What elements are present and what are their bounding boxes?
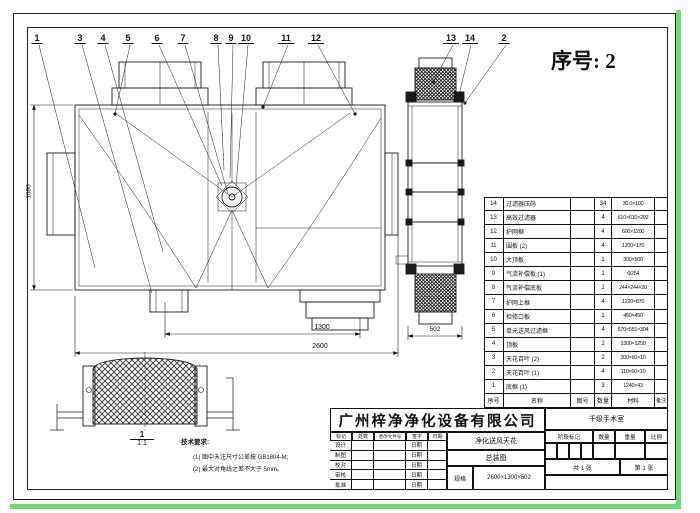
stage-col-weight: 重量 <box>615 430 645 443</box>
dim-depth: 502 <box>430 326 441 333</box>
bom-row: 11 围板 (2) 4 1200×170 <box>484 239 668 253</box>
bom-row: 1 底框 (1) 3 1240×43 <box>484 380 668 394</box>
revision-date-cell <box>428 470 447 480</box>
bom-cell-remark <box>655 239 668 253</box>
bom-header-row: 序号 名称 图号 数量 材料 备注 <box>484 394 668 408</box>
bom-cell-name: 天花百叶 (1) <box>504 366 571 380</box>
bom-cell-size: 450×450 <box>612 310 655 324</box>
bom-cell-size: 300×500 <box>612 253 655 267</box>
bom-row: 4 顶板 2 1300×1250 <box>484 338 668 352</box>
bom-row: 9 气流补偿板 (1) 1 Φ254 <box>484 267 668 281</box>
balloon-callout-8: 8 <box>210 33 221 44</box>
balloon-callout-1: 1 <box>31 33 42 44</box>
bom-cell-qty: 4 <box>595 211 612 225</box>
dim-overall-width: 2600 <box>312 343 328 350</box>
bom-row: 5 单元送风过滤框 4 570×551×304 <box>484 324 668 338</box>
title-block-empty-cell <box>545 475 668 490</box>
revision-date-cell <box>428 480 447 490</box>
scan-edge-right <box>676 10 681 504</box>
technical-requirements: 技术要求: (1) 图中未注尺寸公差按 GB1804-M; (2) 最大对角线之… <box>181 437 351 476</box>
bom-cell-no: 7 <box>484 295 504 309</box>
bom-cell-remark <box>655 267 668 281</box>
bom-cell-qty: 3 <box>595 380 612 394</box>
bom-cell-size: 570×551×304 <box>612 324 655 338</box>
bom-cell-name: 护网框 <box>504 225 571 239</box>
spec-label: 规格 <box>447 466 473 490</box>
bom-header-no: 序号 <box>484 394 504 408</box>
bom-cell-qty: 2 <box>595 352 612 366</box>
bom-cell-name: 气流补偿板 (1) <box>504 267 571 281</box>
rev-col-doc: 更改文件号 <box>374 432 406 441</box>
revision-row: 设计 日期 <box>330 441 447 451</box>
detail-scale: 1:1 <box>130 440 154 447</box>
bom-cell-dwg <box>571 324 595 338</box>
stage-col-scale: 比例 <box>645 430 668 443</box>
tech-notes-title: 技术要求: <box>181 437 351 449</box>
tech-note-item: (1) 图中未注尺寸公差按 GB1804-M; <box>181 452 351 464</box>
bom-cell-name: 围板 (2) <box>504 239 571 253</box>
dim-spigot-spacing: 1300 <box>314 324 330 331</box>
bom-cell-size: 1240×43 <box>612 380 655 394</box>
bom-header-qty: 数量 <box>595 394 612 408</box>
bom-row: 14 过滤器压码 34 30.0×100 <box>484 197 668 211</box>
balloon-callout-14: 14 <box>462 33 478 44</box>
revision-role-label: 校对 <box>330 461 352 471</box>
bom-cell-no: 6 <box>484 310 504 324</box>
bom-cell-no: 10 <box>484 253 504 267</box>
bom-cell-qty: 2 <box>595 338 612 352</box>
bom-cell-qty: 4 <box>595 366 612 380</box>
stage-col-mark: 阶段标记 <box>545 430 593 443</box>
bom-cell-size: 1220×870 <box>612 295 655 309</box>
revision-sign-cell <box>352 441 374 451</box>
balloon-callout-11: 11 <box>278 33 294 44</box>
stage-weight-value <box>615 443 645 459</box>
balloon-callout-7: 7 <box>177 33 188 44</box>
bom-cell-size: 30.0×100 <box>612 197 655 211</box>
bom-cell-size: 1200×170 <box>612 239 655 253</box>
bom-cell-dwg <box>571 295 595 309</box>
bom-cell-qty: 4 <box>595 324 612 338</box>
bom-row: 7 护网上框 4 1220×870 <box>484 295 668 309</box>
bom-cell-no: 3 <box>484 352 504 366</box>
balloon-callout-10: 10 <box>238 33 254 44</box>
bom-cell-name: 护网上框 <box>504 295 571 309</box>
bom-cell-dwg <box>571 310 595 324</box>
tech-note-item: (2) 最大对角线之差不大于 5mm。 <box>181 464 351 476</box>
revision-doc-cell <box>374 451 406 461</box>
revision-row: 校对 日期 <box>330 461 447 471</box>
balloon-callout-3: 3 <box>74 33 85 44</box>
bom-cell-size: 610×610×292 <box>612 211 655 225</box>
bom-cell-name: 过滤器压码 <box>504 197 571 211</box>
bom-row: 6 检修口板 1 450×450 <box>484 310 668 324</box>
bom-cell-dwg <box>571 211 595 225</box>
rev-col-sign: 签字 <box>406 432 428 441</box>
bom-cell-qty: 4 <box>595 295 612 309</box>
bom-cell-no: 13 <box>484 211 504 225</box>
bom-cell-no: 4 <box>484 338 504 352</box>
bom-cell-no: 9 <box>484 267 504 281</box>
revision-doc-cell <box>374 461 406 471</box>
bom-header-remark: 备注 <box>655 394 668 408</box>
bom-row: 8 气流补偿底板 1 244×244×20 <box>484 281 668 295</box>
bom-cell-size: 600×1200 <box>612 225 655 239</box>
bom-row: 12 护网框 4 600×1200 <box>484 225 668 239</box>
company-name: 广州梓净净化设备有限公司 <box>330 408 545 432</box>
bom-cell-name: 顶板 <box>504 338 571 352</box>
bom-row: 10 大顶板 1 300×500 <box>484 253 668 267</box>
serial-number-label: 序号: 2 <box>551 45 616 75</box>
revision-row: 批准 日期 <box>330 480 447 490</box>
revision-sign-cell <box>352 461 374 471</box>
sheet-current: 第 1 张 <box>620 459 668 475</box>
bom-cell-size: 110×60×10 <box>612 366 655 380</box>
drawing-title: 总装图 <box>447 450 545 466</box>
bom-cell-size: 200×60×10 <box>612 352 655 366</box>
bom-cell-no: 8 <box>484 281 504 295</box>
detail-number: 1 <box>130 430 154 440</box>
bom-cell-dwg <box>571 225 595 239</box>
revision-sign-cell <box>352 480 374 490</box>
engineering-drawing-page: 序号: 2 1 3 4 5 6 7 8 9 10 11 12 13 14 2 1… <box>0 0 700 513</box>
bom-cell-name: 底框 (1) <box>504 380 571 394</box>
bom-cell-qty: 1 <box>595 253 612 267</box>
bom-cell-no: 2 <box>484 366 504 380</box>
stage-qty-value <box>593 443 615 459</box>
bom-cell-qty: 34 <box>595 197 612 211</box>
balloon-callout-12: 12 <box>308 33 324 44</box>
balloon-callout-6: 6 <box>151 33 162 44</box>
project-name: 千级手术室 <box>545 408 668 430</box>
bom-cell-remark <box>655 352 668 366</box>
revision-doc-cell <box>374 441 406 451</box>
rev-col-count: 处数 <box>352 432 374 441</box>
bom-cell-remark <box>655 253 668 267</box>
balloon-callout-9: 9 <box>225 33 236 44</box>
bom-row: 2 天花百叶 (1) 4 110×60×10 <box>484 366 668 380</box>
bom-cell-name: 天花百叶 (2) <box>504 352 571 366</box>
bom-cell-dwg <box>571 239 595 253</box>
bom-row: 13 高效过滤器 4 610×610×292 <box>484 211 668 225</box>
bom-cell-size: 244×244×20 <box>612 281 655 295</box>
dim-height: 1080 <box>26 184 33 198</box>
revision-role-label: 审核 <box>330 470 352 480</box>
detail-view-label: 1 1:1 <box>130 430 154 447</box>
bom-cell-remark <box>655 225 668 239</box>
revision-date-label: 日期 <box>406 441 428 451</box>
revision-role-label: 设计 <box>330 441 352 451</box>
bom-cell-dwg <box>571 366 595 380</box>
bom-cell-remark <box>655 281 668 295</box>
revision-date-cell <box>428 441 447 451</box>
bom-cell-remark <box>655 197 668 211</box>
balloon-callout-2: 2 <box>498 33 509 44</box>
bom-row: 3 天花百叶 (2) 2 200×60×10 <box>484 352 668 366</box>
revision-row: 审核 日期 <box>330 470 447 480</box>
rev-col-mark: 标记 <box>330 432 352 441</box>
revision-date-label: 日期 <box>406 470 428 480</box>
bom-cell-no: 5 <box>484 324 504 338</box>
bom-cell-no: 14 <box>484 197 504 211</box>
revision-date-label: 日期 <box>406 480 428 490</box>
stage-mark-box <box>557 443 569 459</box>
revision-row: 制图 日期 <box>330 451 447 461</box>
bom-cell-qty: 1 <box>595 310 612 324</box>
bom-cell-name: 气流补偿底板 <box>504 281 571 295</box>
bom-cell-remark <box>655 211 668 225</box>
revision-date-cell <box>428 451 447 461</box>
bom-cell-no: 11 <box>484 239 504 253</box>
bom-cell-dwg <box>571 253 595 267</box>
bom-cell-remark <box>655 380 668 394</box>
balloon-callout-4: 4 <box>97 33 108 44</box>
bom-cell-dwg <box>571 338 595 352</box>
bom-cell-no: 1 <box>484 380 504 394</box>
stage-col-qty: 数量 <box>593 430 615 443</box>
bom-cell-no: 12 <box>484 225 504 239</box>
bom-cell-size: Φ254 <box>612 267 655 281</box>
scan-edge-bottom <box>10 504 681 509</box>
bom-cell-name: 单元送风过滤框 <box>504 324 571 338</box>
stage-mark-box <box>545 443 557 459</box>
bom-cell-remark <box>655 324 668 338</box>
revision-sign-cell <box>352 451 374 461</box>
product-name: 净化送风天花 <box>447 432 545 450</box>
bom-cell-qty: 1 <box>595 267 612 281</box>
bom-cell-qty: 4 <box>595 225 612 239</box>
rev-col-date: 日期 <box>428 432 447 441</box>
revision-date-cell <box>428 461 447 471</box>
bom-header-dwg: 图号 <box>571 394 595 408</box>
sheet-total: 共 1 张 <box>545 459 620 475</box>
revision-role-label: 批准 <box>330 480 352 490</box>
revision-doc-cell <box>374 470 406 480</box>
bom-cell-size: 1300×1250 <box>612 338 655 352</box>
stage-scale-value <box>645 443 668 459</box>
stage-mark-box <box>569 443 581 459</box>
bom-cell-remark <box>655 295 668 309</box>
bom-cell-remark <box>655 338 668 352</box>
bom-cell-dwg <box>571 267 595 281</box>
bom-cell-name: 大顶板 <box>504 253 571 267</box>
bom-cell-dwg <box>571 352 595 366</box>
balloon-callout-13: 13 <box>443 33 459 44</box>
bom-cell-qty: 4 <box>595 239 612 253</box>
bom-cell-remark <box>655 366 668 380</box>
revision-doc-cell <box>374 480 406 490</box>
stage-mark-box <box>581 443 593 459</box>
bom-cell-dwg <box>571 197 595 211</box>
bom-cell-qty: 1 <box>595 281 612 295</box>
bom-header-material: 材料 <box>612 394 655 408</box>
bom-cell-dwg <box>571 380 595 394</box>
bom-cell-dwg <box>571 281 595 295</box>
spec-value: 2600×1300×502 <box>473 466 545 490</box>
revision-sign-cell <box>352 470 374 480</box>
bom-cell-name: 高效过滤器 <box>504 211 571 225</box>
balloon-callout-5: 5 <box>122 33 133 44</box>
bom-cell-remark <box>655 310 668 324</box>
revision-role-label: 制图 <box>330 451 352 461</box>
bom-header-name: 名称 <box>504 394 571 408</box>
revision-date-label: 日期 <box>406 451 428 461</box>
revision-date-label: 日期 <box>406 461 428 471</box>
bom-cell-name: 检修口板 <box>504 310 571 324</box>
